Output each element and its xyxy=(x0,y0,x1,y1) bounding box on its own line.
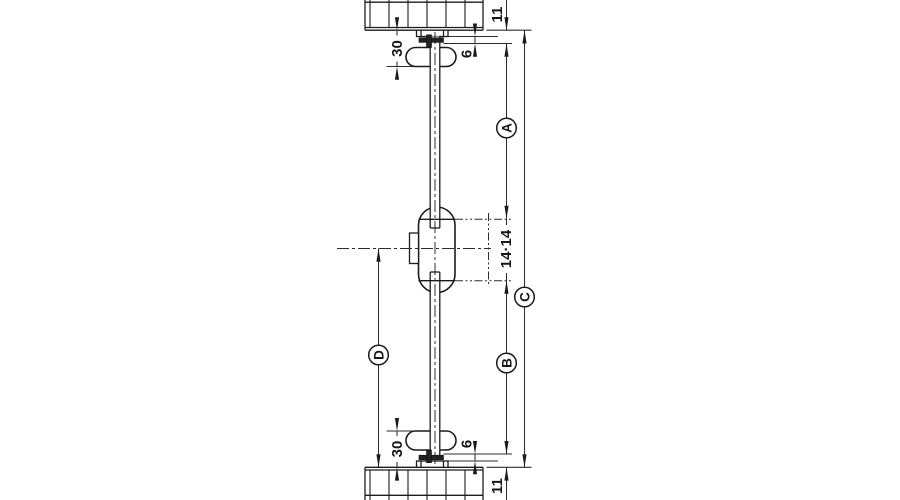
dimension-b: B xyxy=(497,281,517,454)
panel-hatch xyxy=(370,0,465,28)
dimension-a: A xyxy=(497,44,517,219)
dim-11-top-label: 11 xyxy=(489,7,506,23)
dimension-11-top: 11 xyxy=(489,0,509,30)
dimension-6-top: 6 xyxy=(459,24,478,59)
dim-30-bottom-label: 30 xyxy=(389,441,406,458)
dim-30-top-label: 30 xyxy=(389,40,406,57)
lock-rod-section-drawing: 30 6 11 A 14·14 xyxy=(0,0,900,500)
technical-drawing-page: 30 6 11 A 14·14 xyxy=(0,0,900,500)
dim-14-14-label: 14·14 xyxy=(498,229,515,268)
dimension-14-14: 14·14 xyxy=(497,219,515,281)
dimension-11-bottom: 11 xyxy=(489,467,509,500)
top-mounting-plate xyxy=(417,30,449,36)
dimension-d: D xyxy=(369,249,389,468)
dim-6-top-label: 6 xyxy=(459,50,476,58)
dimension-30-bottom: 30 xyxy=(388,418,406,481)
top-panel-section xyxy=(365,0,483,30)
dim-b-label: B xyxy=(500,358,515,368)
dim-11-bottom-label: 11 xyxy=(489,478,506,494)
bottom-mounting-plate xyxy=(417,461,449,467)
dimension-6-bottom: 6 xyxy=(459,440,478,474)
dim-6-bottom-label: 6 xyxy=(459,440,476,448)
dimension-30-top: 30 xyxy=(388,17,406,80)
bottom-panel-section xyxy=(365,467,483,500)
dimension-c: C xyxy=(515,30,535,467)
dim-d-label: D xyxy=(372,350,387,360)
dim-c-label: C xyxy=(518,292,533,302)
dim-a-label: A xyxy=(500,123,515,133)
